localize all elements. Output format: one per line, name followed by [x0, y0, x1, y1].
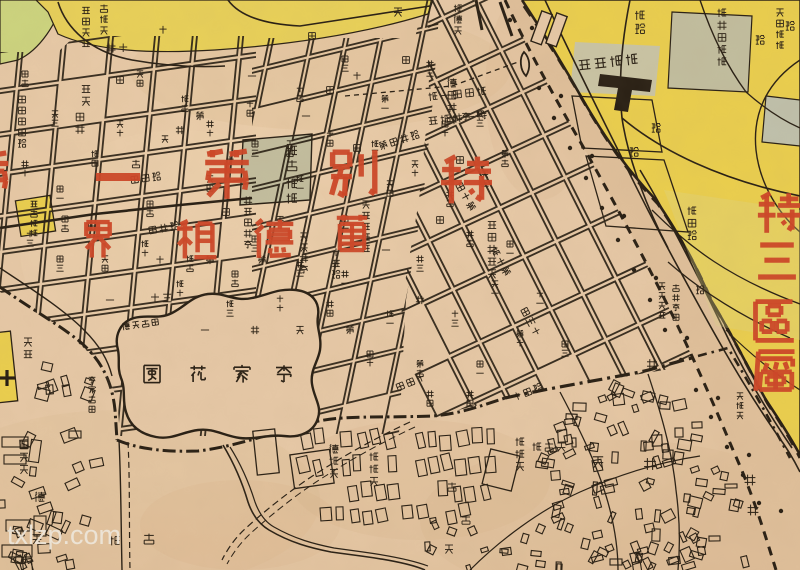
svg-text:txlzp.com: txlzp.com	[7, 520, 121, 550]
